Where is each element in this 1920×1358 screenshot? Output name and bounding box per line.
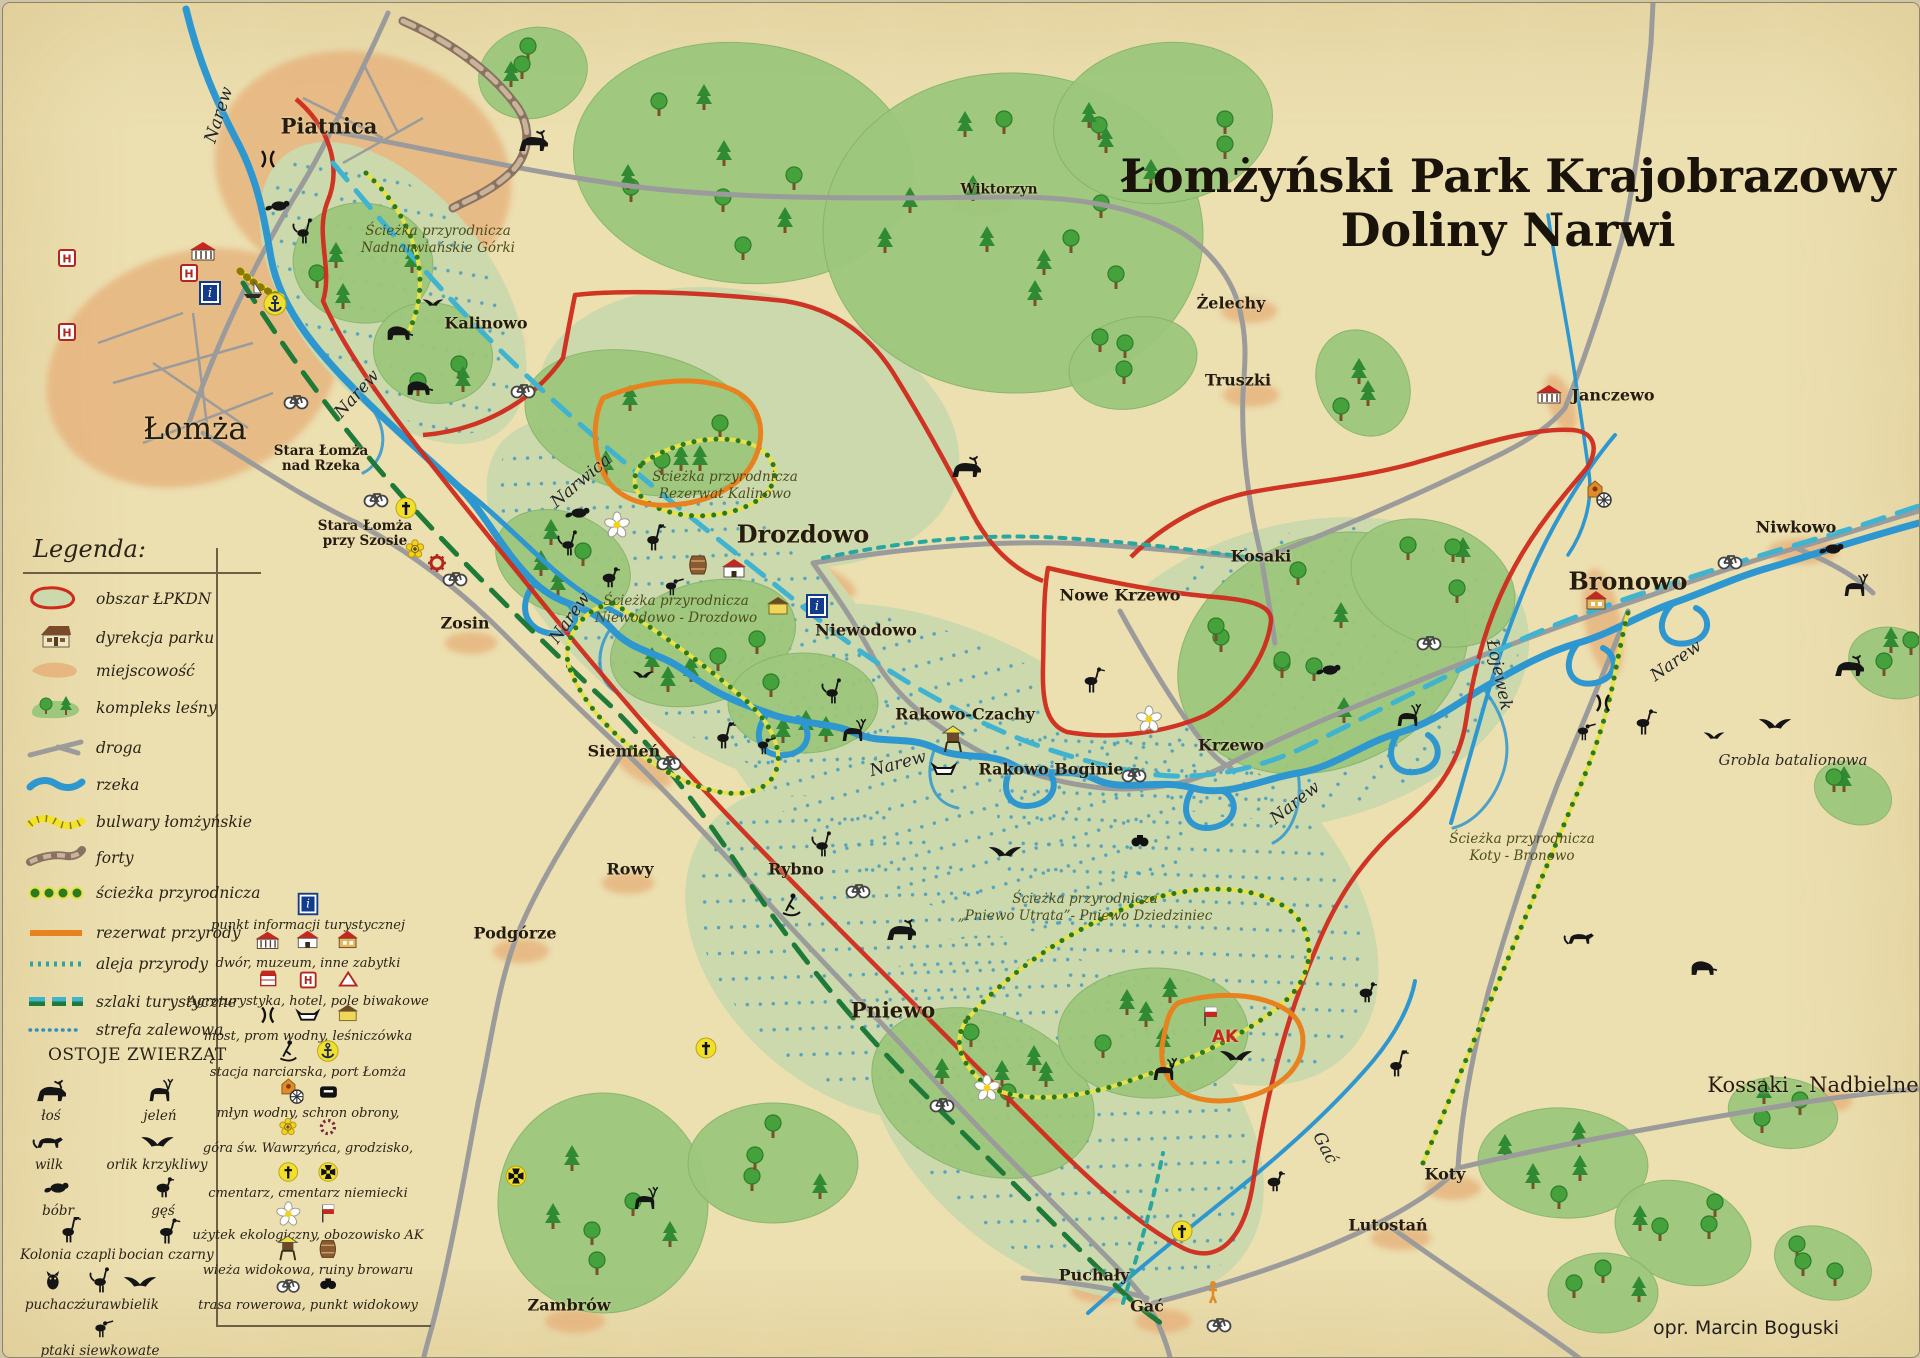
- bike-icon: [444, 573, 467, 586]
- svg-text:H: H: [184, 268, 193, 281]
- svg-text:H: H: [62, 327, 71, 340]
- info-icon: i: [200, 282, 220, 304]
- map-title-line1: Łomżyński Park Krajobrazowy: [1098, 153, 1918, 199]
- info-icon: i: [807, 595, 827, 617]
- barrel-icon: [690, 556, 707, 574]
- forest-area: [1804, 749, 1901, 836]
- wolf-icon: [1565, 933, 1594, 943]
- map-title-line2: Doliny Narwi: [1098, 199, 1918, 261]
- map-page: iiHHH Łomżyński Park Krajobrazowy Doliny…: [2, 2, 1920, 1358]
- forest-area: [1298, 314, 1428, 453]
- forest-area: [1764, 1213, 1882, 1313]
- bike-icon: [365, 494, 388, 507]
- svg-text:i: i: [815, 599, 819, 614]
- hotel-icon: H: [181, 265, 197, 281]
- mill-icon: [1588, 481, 1611, 507]
- gear-icon: [428, 554, 446, 572]
- cross-icon: [396, 498, 416, 518]
- stork-icon: [1637, 709, 1657, 734]
- svg-text:H: H: [62, 253, 71, 266]
- goldflower-icon: [406, 540, 423, 557]
- hotel-icon: H: [59, 324, 75, 340]
- eagle-icon: [1759, 719, 1791, 728]
- hotel-icon: H: [59, 250, 75, 266]
- boar-icon: [1692, 961, 1717, 975]
- attribution: opr. Marcin Boguski: [1653, 1317, 1893, 1339]
- cross-icon: [1172, 1221, 1192, 1241]
- museum-icon: [190, 242, 216, 260]
- heron-icon: [1390, 1050, 1408, 1076]
- map-title: Łomżyński Park Krajobrazowy Doliny Narwi: [1098, 153, 1918, 261]
- cross-icon: [696, 1038, 716, 1058]
- forest-area: [494, 1089, 712, 1316]
- bird-icon: [1704, 732, 1725, 738]
- anchor-icon: [264, 293, 286, 315]
- bike-icon: [1208, 1319, 1231, 1332]
- person-icon: [1209, 1281, 1217, 1303]
- ironcross-icon: [506, 1166, 526, 1186]
- svg-text:i: i: [208, 286, 212, 301]
- goose-icon: [1268, 1171, 1285, 1191]
